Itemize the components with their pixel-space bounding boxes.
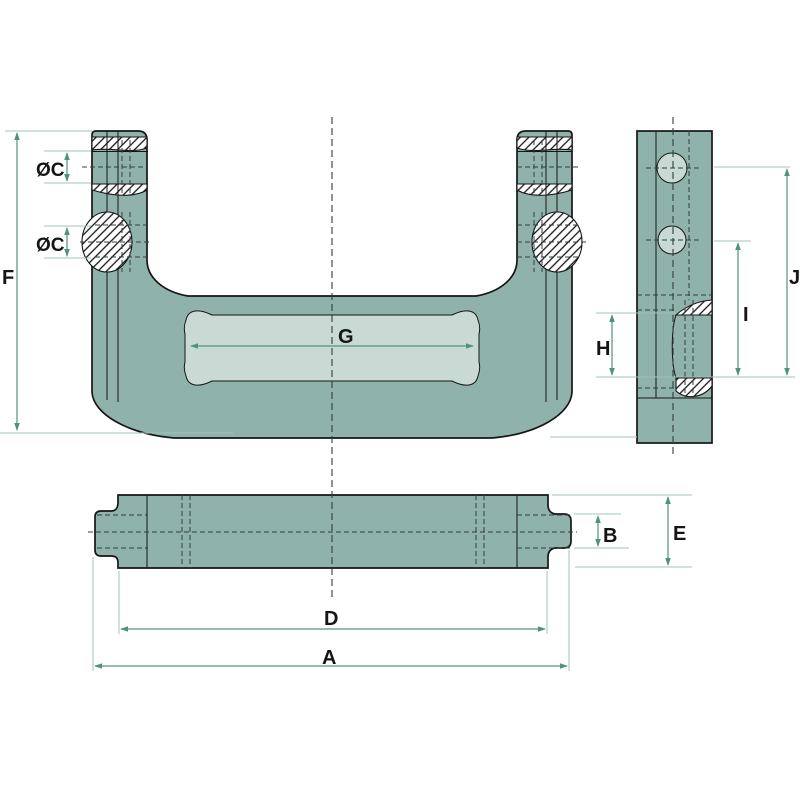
dim-label-A: A xyxy=(322,647,336,669)
dim-label-D: D xyxy=(324,608,338,630)
drawing-canvas: F ØC ØC G H I J E B D A xyxy=(0,0,800,800)
technical-drawing: F ØC ØC G H I J E B D A xyxy=(0,0,800,800)
dim-label-H: H xyxy=(596,338,610,360)
front-hidden-lines xyxy=(80,140,586,272)
dim-label-B: B xyxy=(603,525,617,547)
hatch-band-right-1 xyxy=(517,137,572,151)
dim-label-J: J xyxy=(789,267,800,289)
side-view xyxy=(637,117,712,458)
dim-label-G: G xyxy=(338,326,354,348)
dim-label-F: F xyxy=(2,267,14,289)
dim-label-I: I xyxy=(743,304,749,326)
dim-label-E: E xyxy=(673,523,686,545)
front-view xyxy=(80,131,586,438)
dim-label-C2: ØC xyxy=(36,235,65,256)
hatch-band-left-1 xyxy=(92,137,147,151)
dim-label-C1: ØC xyxy=(36,160,65,181)
